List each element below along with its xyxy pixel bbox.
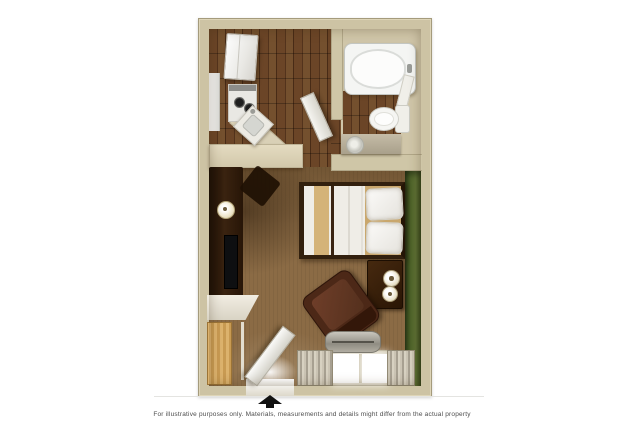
hvac-unit — [325, 331, 381, 353]
lamp-finial — [223, 207, 227, 211]
lamp-finial — [388, 292, 392, 296]
window-pane — [333, 354, 359, 383]
sink-basin — [241, 113, 265, 137]
window-pane — [362, 354, 387, 383]
entrance-arrow-icon — [258, 395, 282, 408]
arrow-stem — [266, 404, 274, 408]
kitchen-cabinets — [209, 73, 220, 131]
closet — [207, 322, 232, 385]
hvac-vent — [332, 341, 374, 343]
toilet-bowl — [374, 112, 394, 126]
table-lamp — [383, 270, 400, 287]
curtain — [297, 350, 333, 386]
sink-faucet — [249, 108, 256, 115]
bed-runner-stripe — [314, 186, 329, 255]
vanity-sink — [346, 136, 364, 154]
pillow — [365, 187, 404, 221]
arrow-head — [258, 395, 282, 404]
duvet-fold — [348, 186, 350, 255]
table-lamp — [382, 286, 398, 302]
bathroom-left-wall — [331, 29, 343, 120]
console-lamp — [217, 201, 235, 219]
kitchen-counter — [209, 144, 303, 168]
pillow — [365, 221, 403, 254]
disclaimer-text: For illustrative purposes only. Material… — [0, 411, 624, 418]
duvet-fold — [361, 186, 363, 255]
bathtub-basin — [350, 49, 406, 89]
refrigerator — [223, 33, 258, 81]
bed-rail — [331, 186, 334, 255]
bathtub-faucet — [407, 64, 412, 73]
stove-control-panel — [229, 85, 256, 91]
hallway-wood-floor — [331, 119, 341, 154]
toilet — [369, 107, 399, 131]
refrigerator-door-line — [236, 35, 240, 79]
curtain — [387, 350, 415, 386]
floor-plan — [198, 18, 432, 397]
bathroom-bottom-wall — [331, 154, 422, 171]
queen-bed — [299, 182, 405, 259]
television — [224, 235, 238, 289]
lamp-finial — [389, 276, 394, 281]
divider-line — [154, 396, 484, 397]
